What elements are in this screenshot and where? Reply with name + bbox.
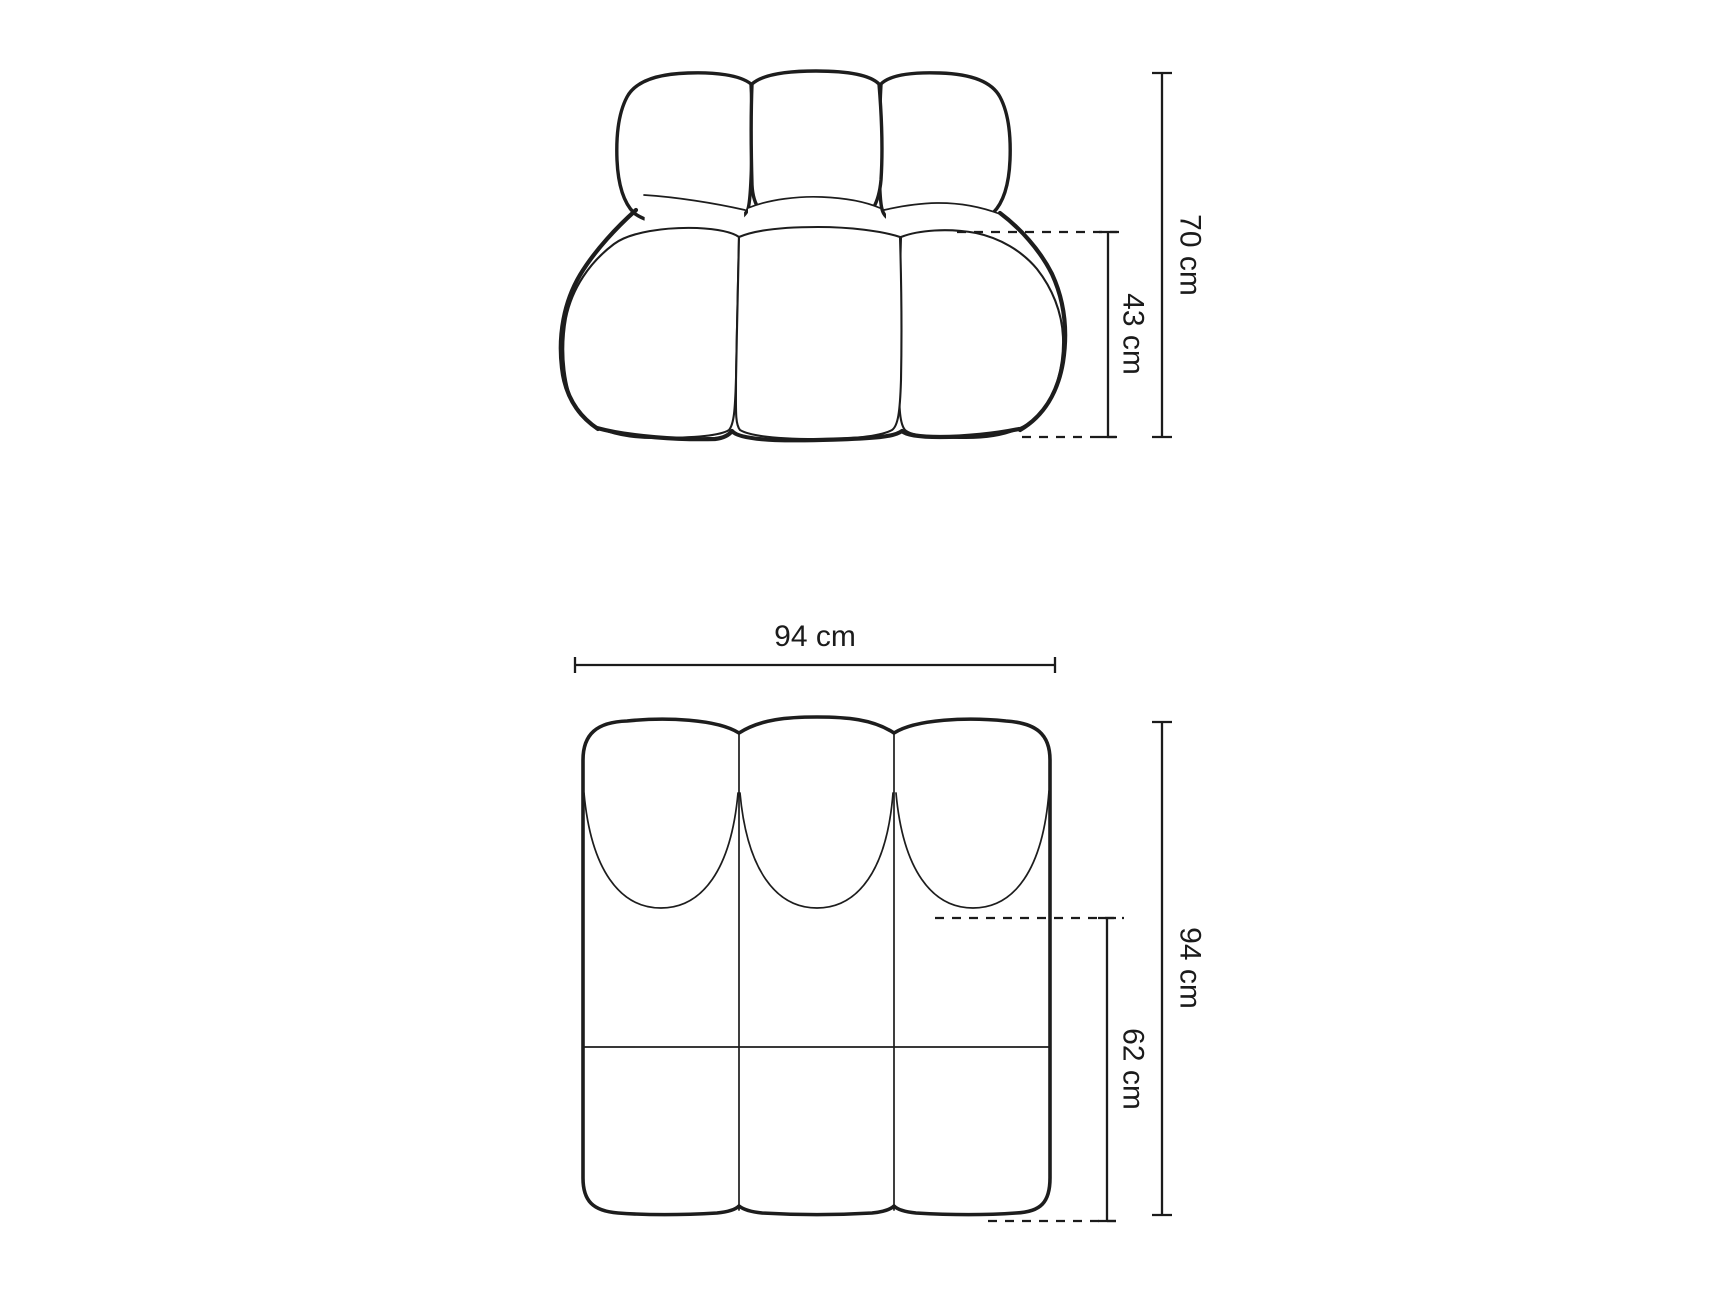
top-width-dimension: 94 cm	[575, 620, 1055, 673]
dim-label-43cm: 43 cm	[1117, 293, 1150, 375]
dimension-diagram: 70 cm 43 cm	[0, 0, 1727, 1295]
top-plan-view: 94 cm 94 cm 62 cm	[575, 620, 1207, 1221]
front-elevation-view: 70 cm 43 cm	[561, 71, 1207, 440]
dim-label-62cm: 62 cm	[1117, 1028, 1150, 1110]
top-view-body-outline	[583, 717, 1050, 1215]
diagram-svg: 70 cm 43 cm	[0, 0, 1727, 1295]
dim-label-width-94cm: 94 cm	[774, 620, 856, 653]
seat-cushion-middle	[736, 227, 901, 439]
front-height-dimension: 70 cm	[1152, 73, 1207, 437]
dim-label-70cm: 70 cm	[1174, 214, 1207, 296]
seat-cushion-right	[899, 230, 1063, 438]
top-depth-dimension: 94 cm	[1152, 722, 1207, 1215]
dim-label-depth-94cm: 94 cm	[1174, 927, 1207, 1009]
